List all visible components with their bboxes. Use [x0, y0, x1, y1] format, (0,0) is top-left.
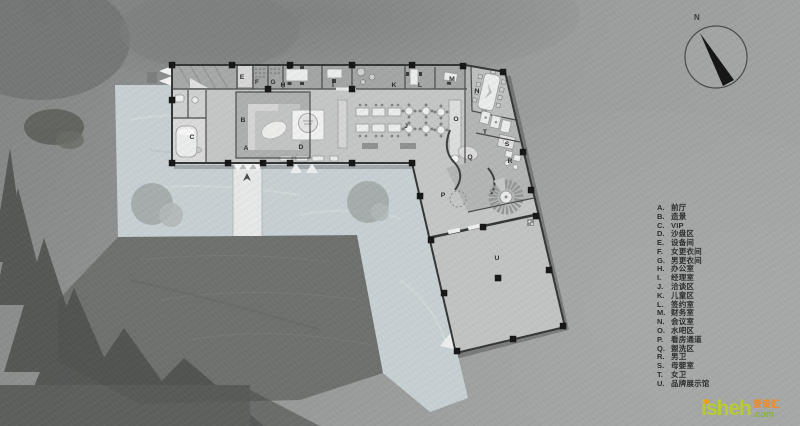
- entry-walkway: [233, 163, 262, 236]
- room-label-k: K: [392, 82, 397, 89]
- legend-item-u: U.品牌展示馆: [657, 380, 787, 389]
- room-label-b: B: [241, 117, 246, 124]
- room-label-s: S: [505, 141, 510, 148]
- room-label-m: M: [449, 76, 455, 83]
- room-label-d: D: [299, 144, 304, 151]
- brand-watermark: isheh 爱设汇 .com: [701, 396, 780, 422]
- room-label-f: F: [255, 79, 259, 86]
- brand-dot-icon: [704, 399, 709, 404]
- room-label-q: Q: [467, 154, 472, 161]
- room-label-u: U: [495, 255, 500, 262]
- room-label-e: E: [240, 74, 245, 81]
- north-compass: N: [685, 13, 747, 88]
- room-label-h: H: [281, 82, 286, 89]
- room-label-g: G: [270, 79, 275, 86]
- room-label-o: O: [453, 116, 458, 123]
- brand-tld: .com: [753, 409, 780, 419]
- room-label-a: A: [244, 145, 249, 152]
- legend: A.前厅 B.造景 C.VIP D.沙盘区 E.设备间 F.女更衣间 G.男更衣…: [657, 204, 787, 388]
- room-label-l: L: [418, 82, 422, 89]
- room-label-j: J: [404, 123, 408, 130]
- room-label-i: I: [332, 82, 334, 89]
- room-label-p: P: [441, 192, 446, 199]
- room-label-r: R: [508, 158, 513, 165]
- floor-plan-page: A B C D E F G H I J K L M N O P Q R S T …: [0, 0, 800, 426]
- compass-north-label: N: [694, 13, 700, 22]
- room-c-vip: [173, 90, 206, 163]
- room-label-c: C: [190, 134, 195, 141]
- room-label-n: N: [475, 88, 480, 95]
- brand-chinese: 爱设汇: [753, 399, 780, 409]
